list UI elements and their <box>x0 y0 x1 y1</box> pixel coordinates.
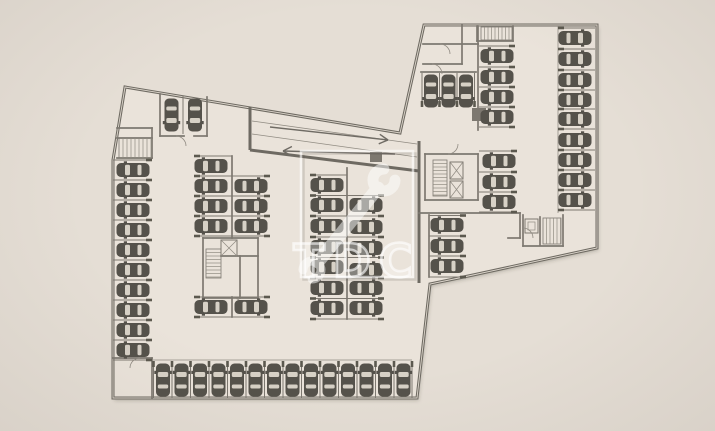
car-icon <box>431 216 464 233</box>
car-icon <box>117 301 150 318</box>
floor-plan-page: TDC <box>0 0 715 431</box>
car-icon <box>117 281 150 298</box>
car-icon <box>457 75 474 108</box>
car-icon <box>481 68 514 85</box>
car-icon <box>481 88 514 105</box>
car-icon <box>191 364 208 397</box>
car-icon <box>321 364 338 397</box>
car-icon <box>195 217 228 234</box>
car-icon <box>195 157 228 174</box>
car-icon <box>483 152 516 169</box>
car-icon <box>154 364 171 397</box>
car-icon <box>559 171 592 188</box>
car-icon <box>422 75 439 108</box>
car-icon <box>195 177 228 194</box>
car-icon <box>117 261 150 278</box>
car-icon <box>186 99 203 132</box>
car-icon <box>284 364 301 397</box>
car-icon <box>117 341 150 358</box>
car-icon <box>559 110 592 127</box>
car-icon <box>163 99 180 132</box>
car-icon <box>302 364 319 397</box>
car-icon <box>440 75 457 108</box>
car-icon <box>395 364 412 397</box>
car-icon <box>358 364 375 397</box>
floor-plan: TDC <box>0 0 715 431</box>
car-icon <box>483 193 516 210</box>
car-icon <box>559 131 592 148</box>
car-icon <box>559 91 592 108</box>
car-icon <box>235 217 268 234</box>
car-icon <box>350 299 383 316</box>
car-icon <box>117 321 150 338</box>
car-icon <box>559 50 592 67</box>
car-icon <box>311 299 344 316</box>
car-icon <box>431 257 464 274</box>
car-icon <box>228 364 245 397</box>
car-icon <box>235 298 268 315</box>
car-icon <box>117 161 150 178</box>
car-icon <box>117 201 150 218</box>
car-icon <box>173 364 190 397</box>
car-icon <box>481 47 514 64</box>
car-icon <box>559 151 592 168</box>
car-icon <box>339 364 356 397</box>
car-icon <box>235 197 268 214</box>
car-icon <box>376 364 393 397</box>
car-icon <box>559 71 592 88</box>
car-icon <box>210 364 227 397</box>
car-icon <box>195 197 228 214</box>
car-icon <box>117 241 150 258</box>
car-icon <box>431 237 464 254</box>
car-icon <box>481 108 514 125</box>
car-icon <box>311 196 344 213</box>
car-icon <box>235 177 268 194</box>
car-icon <box>117 181 150 198</box>
car-icon <box>483 173 516 190</box>
car-icon <box>247 364 264 397</box>
car-icon <box>311 176 344 193</box>
car-icon <box>195 298 228 315</box>
car-icon <box>559 191 592 208</box>
watermark-letters: TDC <box>293 234 420 288</box>
car-icon <box>559 29 592 46</box>
car-icon <box>117 221 150 238</box>
car-icon <box>265 364 282 397</box>
